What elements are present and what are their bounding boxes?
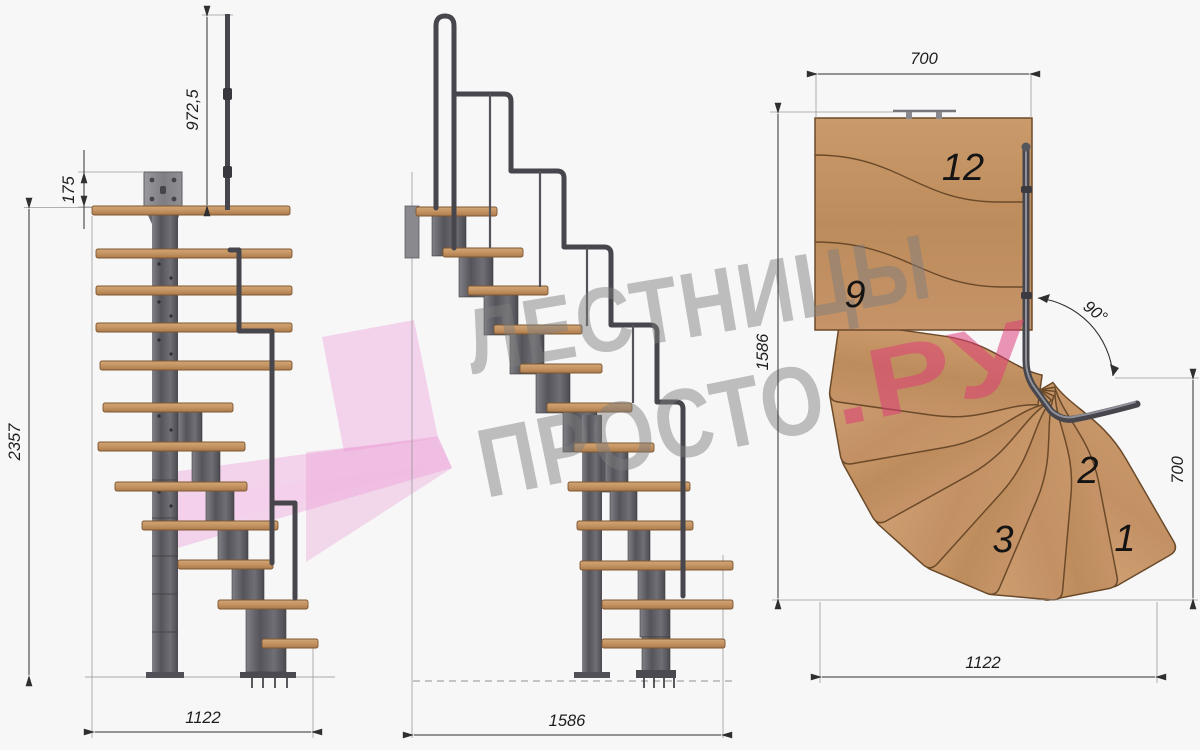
step-label-12: 12 <box>942 147 984 189</box>
post-joint-1 <box>223 88 232 100</box>
step-label-1: 1 <box>1114 518 1135 560</box>
dim-plan-angle: 90° <box>1080 297 1111 327</box>
side-anchor-bolts <box>644 678 674 688</box>
step-label-2: 2 <box>1076 450 1098 492</box>
arc-arrow-end <box>1110 364 1119 376</box>
dim-plan-width: 1122 <box>965 654 1000 672</box>
front-anchor-bolts <box>252 678 287 688</box>
staircase-drawing-page: ЛЕСТНИЦЫ ПРОСТО .РУ 972,5 175 2357 1122 … <box>0 0 1200 750</box>
staircase-drawing: ЛЕСТНИЦЫ ПРОСТО .РУ 972,5 175 2357 1122 … <box>0 0 1200 750</box>
post-joint-2 <box>223 166 232 178</box>
side-lower-base <box>636 670 676 678</box>
front-lower-base <box>240 672 296 678</box>
plan-handrail <box>1026 148 1137 419</box>
front-view <box>24 14 335 738</box>
plan-rail-cap <box>1022 143 1031 152</box>
plan-rail-joint-1 <box>1021 186 1032 193</box>
logo-arrow-top-facet <box>322 320 438 452</box>
step-label-9: 9 <box>844 274 865 316</box>
dim-front-plate-height: 175 <box>60 175 78 203</box>
plan-rail-joint-2 <box>1021 292 1032 299</box>
dim-front-total-height: 2357 <box>6 423 24 462</box>
dim-front-width: 1122 <box>185 709 220 727</box>
dim-front-handrail-height: 972,5 <box>184 89 202 131</box>
dim-side-length: 1586 <box>549 712 587 730</box>
front-treads <box>92 206 318 648</box>
front-handrail-post <box>225 14 230 210</box>
front-column-base <box>146 672 184 678</box>
dim-plan-length: 1586 <box>754 333 772 371</box>
side-column-base <box>574 672 610 678</box>
dim-plan-landing-width: 700 <box>910 50 938 68</box>
dim-plan-entry-width: 700 <box>1169 455 1187 483</box>
step-label-3: 3 <box>992 519 1013 561</box>
logo-arrow-tip-facet <box>306 438 452 562</box>
arc-arrow-start <box>1038 294 1050 303</box>
front-landing-board <box>92 206 290 215</box>
